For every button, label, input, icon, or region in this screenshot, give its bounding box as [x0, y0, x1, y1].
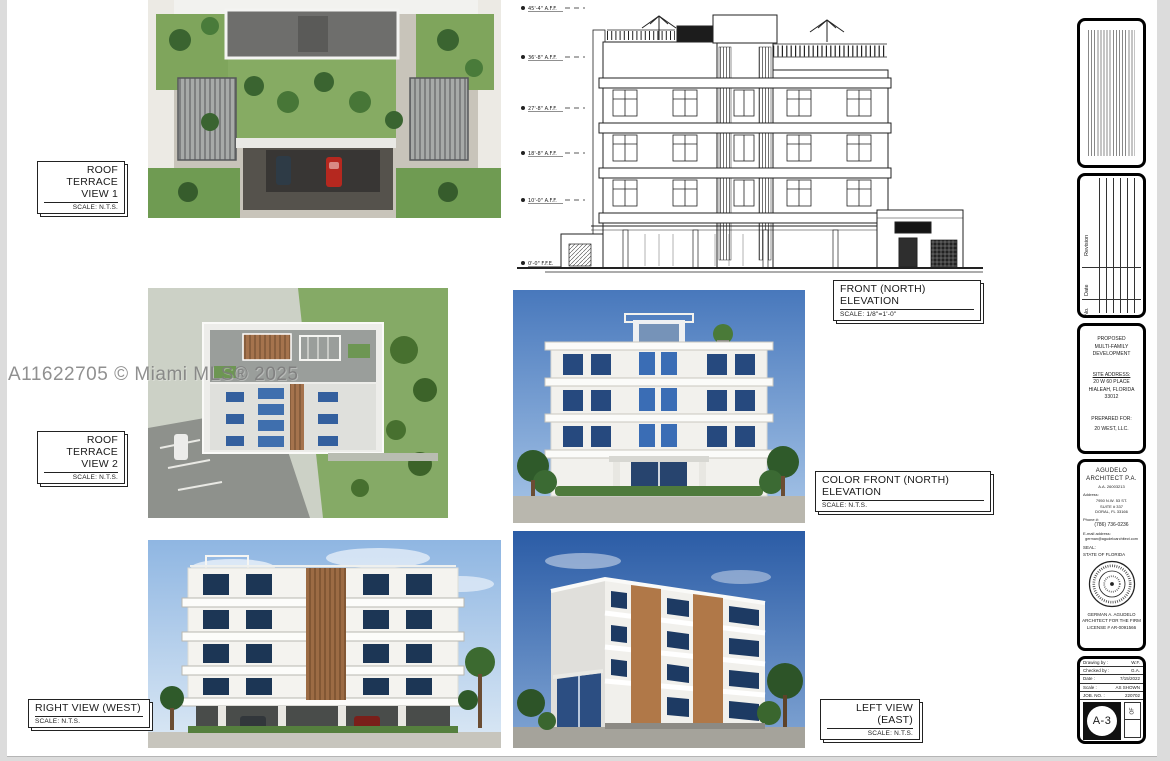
architect-name: ARCHITECT P.A. — [1080, 475, 1143, 483]
seal-stamp-icon — [1086, 558, 1138, 610]
architect-name: AGUDELO — [1080, 467, 1143, 475]
info-value: AS SHOWN — [1115, 685, 1140, 690]
roof-terrace-view-2-svg — [148, 288, 448, 518]
label-scale: SCALE: 1/8"=1'-0" — [840, 311, 974, 318]
info-row-drawing-by: Drawing by : W.F. — [1080, 659, 1143, 667]
label-rule — [44, 202, 118, 203]
color-front-elevation-label: COLOR FRONT (NORTH) ELEVATION SCALE: N.T… — [815, 471, 991, 512]
seal-architect-title: ARCHITECT FOR THE FIRM — [1080, 618, 1143, 624]
left-view-east-svg — [513, 531, 805, 748]
architect-email: german@agudeloarchitect.com — [1080, 537, 1143, 542]
label-scale: SCALE: N.T.S. — [35, 718, 143, 725]
label-rule — [840, 309, 974, 310]
label-scale: SCALE: N.T.S. — [44, 474, 118, 481]
roof-terrace-2-shapes — [148, 288, 448, 518]
architect-address-line: DORAL, FL 33166 — [1080, 509, 1143, 515]
label-rule — [44, 472, 118, 473]
architect-license-no: A.A. 26003213 — [1080, 484, 1143, 490]
sheet-number-area: A-3 OF — [1080, 700, 1143, 742]
left-view-label: LEFT VIEW (EAST) SCALE: N.T.S. — [820, 699, 920, 740]
architectural-sheet-page: 45'-4" A.F.F. 36'-8" A.F.F. 27'-8" A.F.F… — [0, 0, 1170, 761]
info-label: Checked by : — [1083, 668, 1109, 673]
info-label: Date : — [1083, 676, 1095, 681]
label-title: ROOF TERRACE — [44, 164, 118, 188]
label-scale: SCALE: N.T.S. — [822, 502, 984, 509]
right-view-shapes — [148, 540, 501, 748]
left-view-east-render — [513, 531, 805, 748]
titleblock-architect: AGUDELO ARCHITECT P.A. A.A. 26003213 Add… — [1077, 459, 1146, 651]
date-label: Date — [1084, 272, 1090, 296]
revision-label: Revision — [1084, 198, 1090, 256]
front-elevation-drawing: 45'-4" A.F.F. 36'-8" A.F.F. 27'-8" A.F.F… — [515, 0, 985, 300]
info-row-date: Date : 7/15/2022 — [1080, 675, 1143, 683]
titleblock-general-notes — [1077, 18, 1146, 168]
label-title: ROOF TERRACE — [44, 434, 118, 458]
svg-text:0'-0" F.F.E.: 0'-0" F.F.E. — [528, 261, 554, 267]
titleblock-revision-table: Revision Date No. — [1077, 173, 1146, 318]
left-view-shapes — [513, 531, 805, 748]
info-label: Scale : — [1083, 685, 1097, 690]
roof-terrace-1-label: ROOF TERRACE VIEW 1 SCALE: N.T.S. — [37, 161, 125, 214]
color-front-elevation-render — [513, 290, 805, 523]
no-label: No. — [1084, 302, 1090, 316]
front-elevation-svg: 45'-4" A.F.F. 36'-8" A.F.F. 27'-8" A.F.F… — [515, 0, 985, 300]
color-front-elevation-svg — [513, 290, 805, 523]
roof-terrace-view-1-svg — [148, 0, 501, 218]
sheet-number: A-3 — [1087, 706, 1117, 736]
right-view-west-svg — [148, 540, 501, 748]
sheet-of-label: OF — [1129, 707, 1135, 714]
label-title: COLOR FRONT (NORTH) ELEVATION — [822, 474, 984, 498]
info-value: G.A. — [1131, 668, 1140, 673]
project-name-line: DEVELOPMENT — [1080, 351, 1143, 359]
site-address-line: 33012 — [1080, 394, 1143, 402]
label-rule — [35, 716, 143, 717]
titleblock-drawing-info: Drawing by : W.F. Checked by : G.A. Date… — [1077, 656, 1146, 744]
label-title: VIEW 1 — [44, 188, 118, 200]
right-view-label: RIGHT VIEW (WEST) SCALE: N.T.S. — [28, 699, 150, 728]
elevation-datum-markers: 45'-4" A.F.F. 36'-8" A.F.F. 27'-8" A.F.F… — [521, 6, 585, 267]
info-value: W.F. — [1131, 660, 1140, 665]
label-title: VIEW 2 — [44, 458, 118, 470]
info-row-checked-by: Checked by : G.A. — [1080, 667, 1143, 675]
site-address-label: SITE ADDRESS: — [1080, 372, 1143, 380]
label-rule — [822, 500, 984, 501]
building-linework — [517, 15, 983, 272]
front-elevation-label: FRONT (NORTH) ELEVATION SCALE: 1/8"=1'-0… — [833, 280, 981, 321]
color-front-shapes — [513, 290, 805, 523]
info-row-scale: Scale : AS SHOWN — [1080, 684, 1143, 692]
label-title: FRONT (NORTH) ELEVATION — [840, 283, 974, 307]
svg-text:27'-8" A.F.F.: 27'-8" A.F.F. — [528, 106, 557, 112]
sheet-number-block: A-3 — [1083, 702, 1121, 740]
roof-terrace-1-shapes — [148, 0, 501, 218]
revision-table-grid: Revision Date No. — [1080, 176, 1143, 315]
sheet-of-cell: OF — [1124, 702, 1141, 720]
info-label: JOB. NO. : — [1083, 693, 1105, 698]
titleblock-project-info: PROPOSED MULTI-FAMILY DEVELOPMENT SITE A… — [1077, 323, 1146, 454]
general-notes-text — [1088, 30, 1135, 156]
label-rule — [827, 728, 913, 729]
right-view-west-render — [148, 540, 501, 748]
info-value: 7/15/2022 — [1120, 676, 1140, 681]
label-title: RIGHT VIEW (WEST) — [35, 702, 143, 714]
label-scale: SCALE: N.T.S. — [44, 204, 118, 211]
prepared-for-label: PREPARED FOR: — [1080, 416, 1143, 424]
sheet-of-empty-cell — [1124, 720, 1141, 738]
site-address-line: 20 W 60 PLACE — [1080, 379, 1143, 387]
svg-text:36'-8" A.F.F.: 36'-8" A.F.F. — [528, 55, 557, 61]
svg-text:45'-4" A.F.F.: 45'-4" A.F.F. — [528, 6, 557, 12]
prepared-for-value: 20 WEST, LLC. — [1080, 426, 1143, 434]
svg-text:18'-8" A.F.F.: 18'-8" A.F.F. — [528, 151, 557, 157]
roof-terrace-2-label: ROOF TERRACE VIEW 2 SCALE: N.T.S. — [37, 431, 125, 484]
label-scale: SCALE: N.T.S. — [827, 730, 913, 737]
project-name-line: PROPOSED — [1080, 336, 1143, 344]
info-value: 220702 — [1125, 693, 1140, 698]
roof-terrace-view-1-render — [148, 0, 501, 218]
site-address-line: HIALEAH, FLORIDA — [1080, 387, 1143, 395]
project-name-line: MULTI-FAMILY — [1080, 344, 1143, 352]
info-row-job-no: JOB. NO. : 220702 — [1080, 692, 1143, 700]
seal-architect-license: LICENSE # AR-0091566 — [1080, 625, 1143, 631]
architect-phone: (786) 736-0236 — [1080, 522, 1143, 529]
label-title: LEFT VIEW (EAST) — [827, 702, 913, 726]
mls-watermark: A11622705 © Miami MLS® 2025 — [8, 364, 298, 386]
architect-seal — [1080, 558, 1143, 612]
roof-terrace-view-2-render — [148, 288, 448, 518]
info-label: Drawing by : — [1083, 660, 1108, 665]
svg-text:10'-0" A.F.F.: 10'-0" A.F.F. — [528, 198, 557, 204]
